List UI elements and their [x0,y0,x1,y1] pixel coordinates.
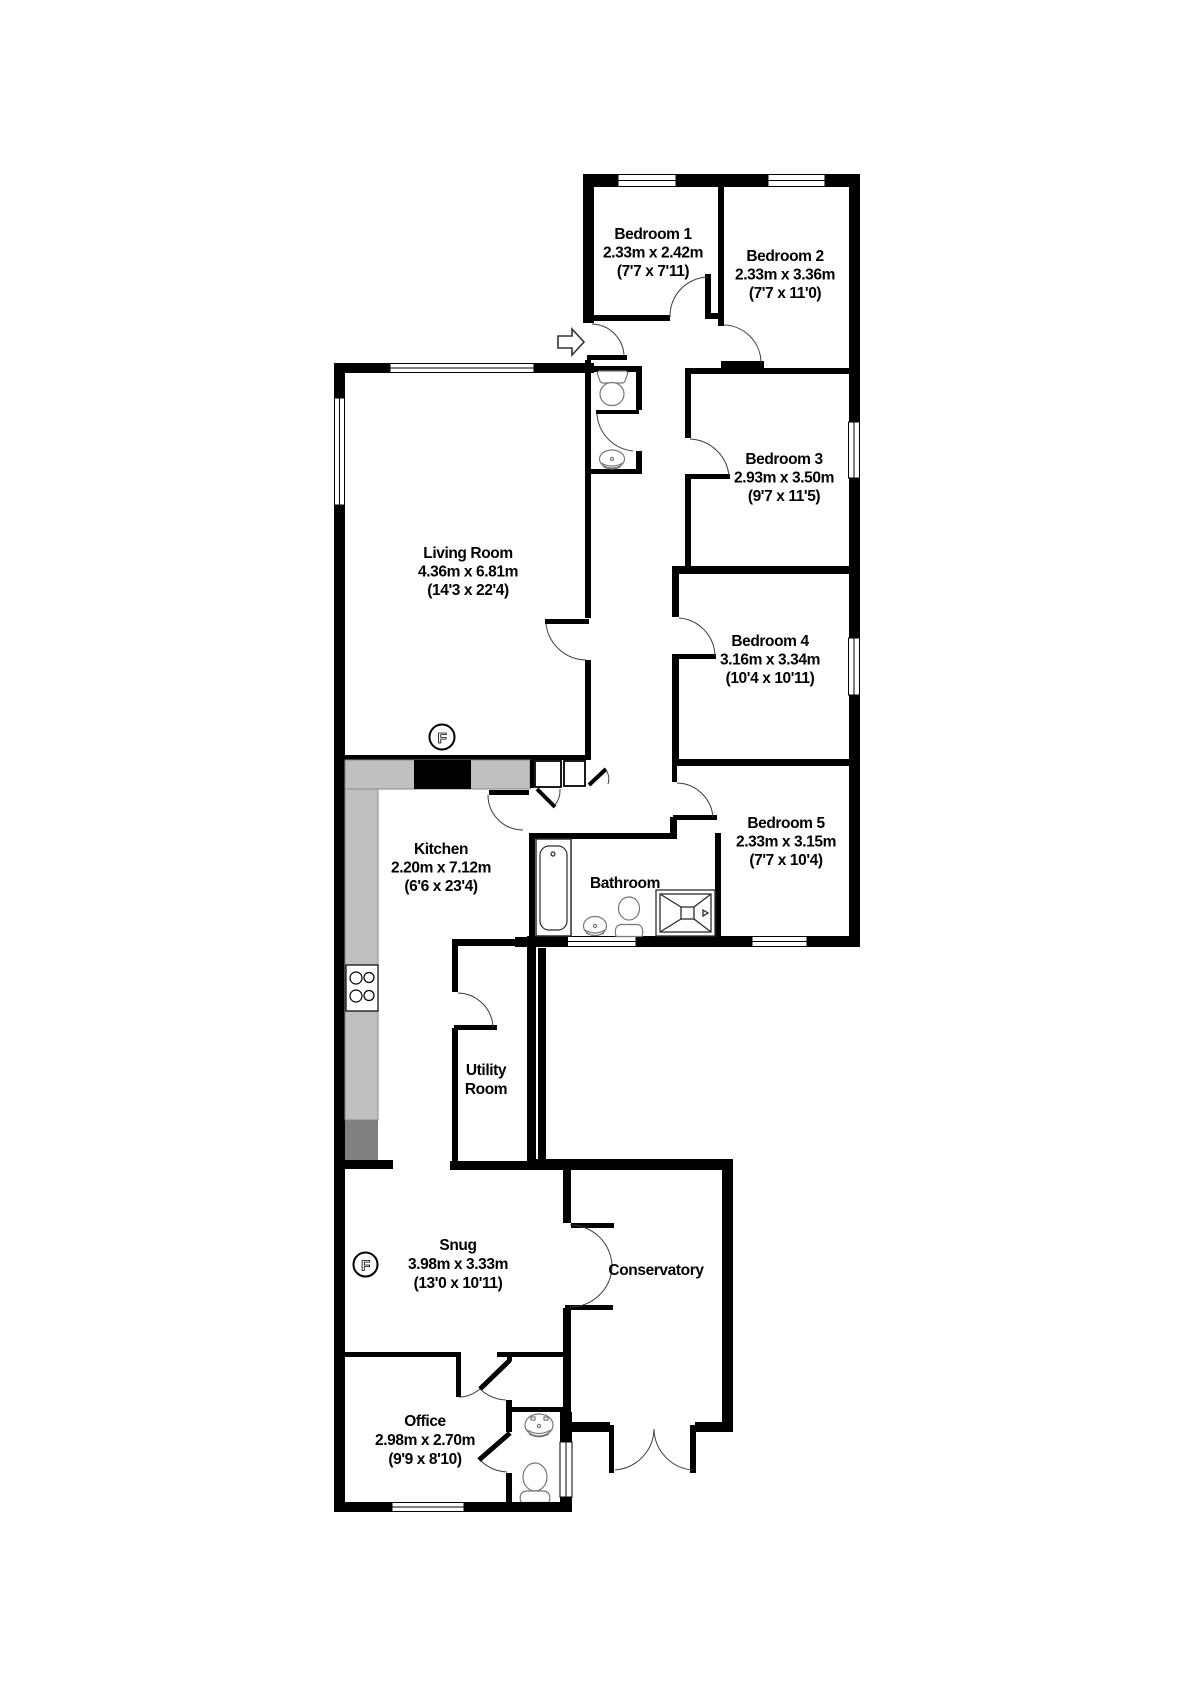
svg-text:(13'0 x 10'11): (13'0 x 10'11) [414,1275,503,1292]
svg-text:(9'7 x 11'5): (9'7 x 11'5) [748,488,821,505]
svg-text:(10'4 x 10'11): (10'4 x 10'11) [726,670,815,687]
svg-text:Utility: Utility [466,1062,507,1079]
svg-text:Room: Room [465,1081,507,1098]
svg-text:Snug: Snug [439,1237,476,1254]
svg-text:Bedroom 2: Bedroom 2 [746,248,823,265]
svg-text:2.93m x 3.50m: 2.93m x 3.50m [734,470,834,487]
svg-text:(7'7 x 11'0): (7'7 x 11'0) [749,285,822,302]
svg-text:Conservatory: Conservatory [608,1262,704,1279]
svg-text:Bedroom 3: Bedroom 3 [745,451,823,468]
svg-text:2.98m x 2.70m: 2.98m x 2.70m [375,1432,475,1449]
svg-text:3.16m x 3.34m: 3.16m x 3.34m [720,652,820,669]
svg-text:(6'6 x 23'4): (6'6 x 23'4) [404,878,477,895]
svg-text:Living Room: Living Room [423,545,512,562]
svg-text:F: F [361,1258,370,1275]
svg-text:Office: Office [404,1413,446,1430]
svg-text:Bedroom 5: Bedroom 5 [747,815,825,832]
svg-text:F: F [438,730,447,747]
svg-text:Kitchen: Kitchen [414,841,468,858]
svg-text:2.33m x 3.36m: 2.33m x 3.36m [735,267,835,284]
svg-text:Bedroom 4: Bedroom 4 [731,633,809,650]
svg-text:4.36m x 6.81m: 4.36m x 6.81m [418,564,518,581]
svg-text:3.98m x 3.33m: 3.98m x 3.33m [408,1256,508,1273]
svg-text:2.33m x 2.42m: 2.33m x 2.42m [603,245,703,262]
svg-text:(14'3 x 22'4): (14'3 x 22'4) [427,582,509,599]
svg-text:(7'7 x 10'4): (7'7 x 10'4) [749,852,822,869]
svg-text:2.33m x 3.15m: 2.33m x 3.15m [736,834,836,851]
svg-text:Bedroom 1: Bedroom 1 [614,226,692,243]
svg-text:2.20m x 7.12m: 2.20m x 7.12m [391,860,491,877]
svg-text:Bathroom: Bathroom [590,875,660,892]
svg-text:(7'7 x 7'11): (7'7 x 7'11) [617,263,690,280]
svg-text:(9'9 x 8'10): (9'9 x 8'10) [388,1451,461,1468]
